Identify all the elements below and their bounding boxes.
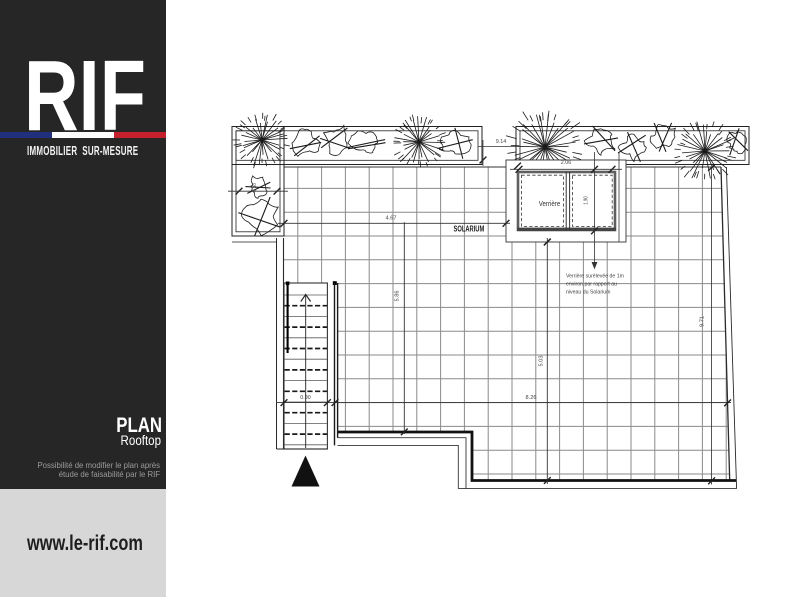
svg-text:Verrière surélevée de 1menviro: Verrière surélevée de 1menviron par rapp… bbox=[566, 274, 624, 296]
svg-text:8.26: 8.26 bbox=[526, 395, 537, 401]
svg-text:Verrière: Verrière bbox=[539, 199, 561, 208]
svg-text:5.86: 5.86 bbox=[395, 291, 401, 302]
svg-text:0.90: 0.90 bbox=[300, 395, 311, 401]
svg-text:0.80: 0.80 bbox=[252, 183, 257, 192]
svg-text:4.67: 4.67 bbox=[386, 216, 397, 222]
svg-text:5.03: 5.03 bbox=[539, 356, 545, 367]
svg-text:2.06: 2.06 bbox=[561, 160, 572, 166]
svg-text:9.14: 9.14 bbox=[496, 139, 507, 145]
svg-text:SOLARIUM: SOLARIUM bbox=[454, 223, 485, 233]
svg-text:1.90: 1.90 bbox=[584, 196, 590, 205]
svg-text:9.71: 9.71 bbox=[700, 316, 706, 327]
